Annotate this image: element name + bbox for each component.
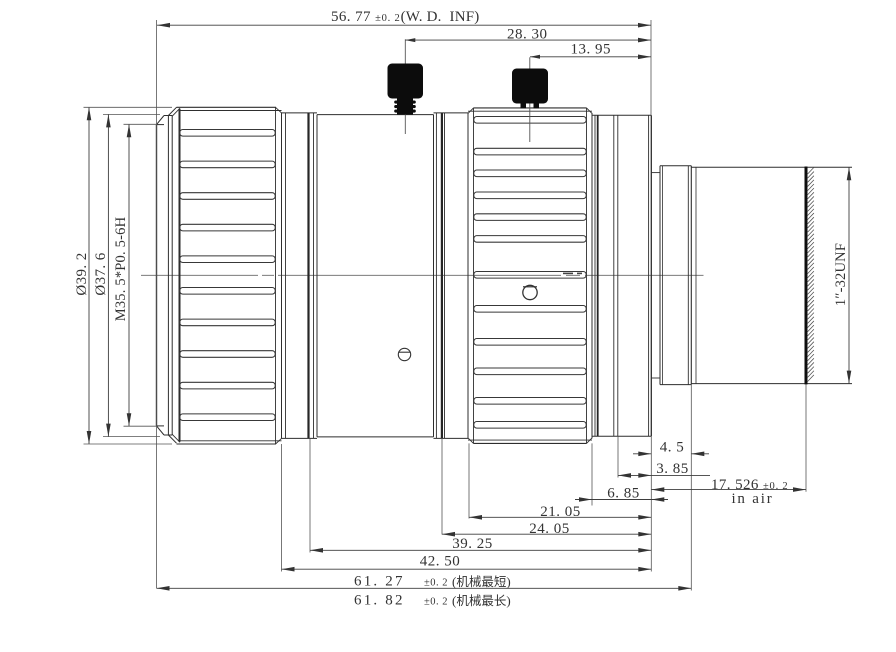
svg-text:28. 30: 28. 30 <box>507 27 548 43</box>
svg-text:±0. 2: ±0. 2 <box>424 597 448 608</box>
svg-text:(机械最短): (机械最短) <box>452 574 511 589</box>
svg-text:13. 95: 13. 95 <box>571 42 612 58</box>
svg-text:61. 27: 61. 27 <box>354 574 405 590</box>
svg-text:3. 85: 3. 85 <box>656 461 689 477</box>
svg-text:in air: in air <box>731 491 773 507</box>
svg-text:24. 05: 24. 05 <box>529 521 570 537</box>
svg-text:61. 82: 61. 82 <box>354 593 405 609</box>
svg-text:21. 05: 21. 05 <box>540 504 581 520</box>
svg-text:42. 50: 42. 50 <box>420 554 461 570</box>
svg-text:39. 25: 39. 25 <box>452 536 493 552</box>
svg-text:4. 5: 4. 5 <box>660 440 685 456</box>
svg-text:1″-32UNF: 1″-32UNF <box>833 243 849 306</box>
svg-text:M35. 5*P0. 5-6H: M35. 5*P0. 5-6H <box>113 216 129 321</box>
svg-text:(机械最长): (机械最长) <box>452 593 511 608</box>
svg-text:6. 85: 6. 85 <box>607 486 640 502</box>
svg-text:56. 77 ±0. 2(W. D. INF): 56. 77 ±0. 2(W. D. INF) <box>331 9 480 25</box>
svg-text:±0. 2: ±0. 2 <box>424 578 448 589</box>
svg-text:Ø39. 2: Ø39. 2 <box>74 252 90 295</box>
svg-text:Ø37. 6: Ø37. 6 <box>93 252 109 295</box>
